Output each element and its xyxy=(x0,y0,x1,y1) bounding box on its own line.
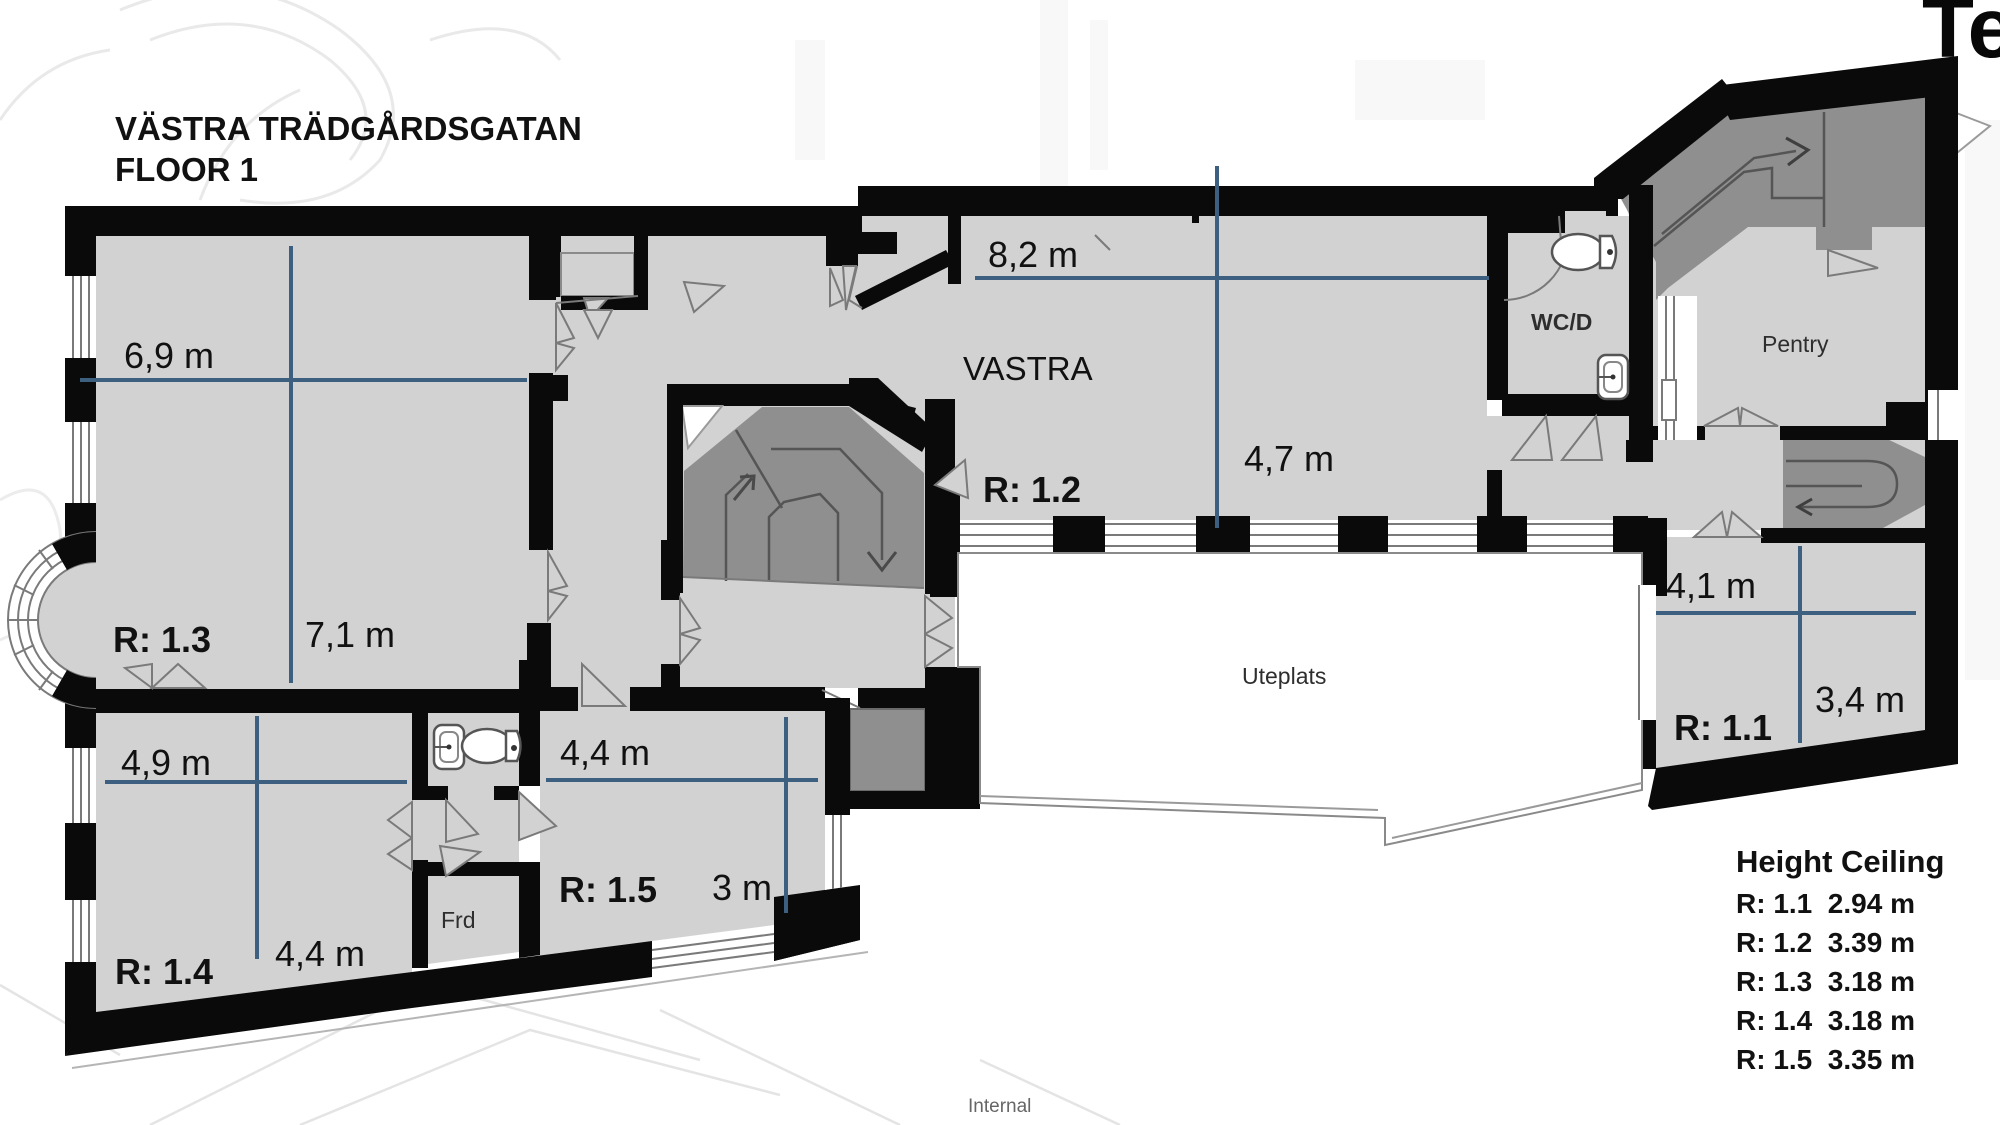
svg-text:Internal: Internal xyxy=(968,1096,1031,1117)
svg-text:R: 1.4 3.18 m: R: 1.4 3.18 m xyxy=(1736,1005,1915,1036)
svg-text:Height Ceiling: Height Ceiling xyxy=(1736,844,1944,879)
svg-text:R: 1.2: R: 1.2 xyxy=(983,469,1081,510)
svg-text:6,9 m: 6,9 m xyxy=(124,335,214,376)
svg-text:R: 1.5 3.35 m: R: 1.5 3.35 m xyxy=(1736,1044,1915,1075)
svg-text:WC/D: WC/D xyxy=(1531,309,1592,335)
svg-text:VÄSTRA TRÄDGÅRDSGATAN: VÄSTRA TRÄDGÅRDSGATAN xyxy=(115,110,582,147)
svg-text:7,1 m: 7,1 m xyxy=(305,614,395,655)
svg-text:R: 1.2 3.39 m: R: 1.2 3.39 m xyxy=(1736,927,1915,958)
svg-text:VASTRA: VASTRA xyxy=(963,350,1093,387)
svg-text:R: 1.5: R: 1.5 xyxy=(559,869,657,910)
svg-text:R: 1.4: R: 1.4 xyxy=(115,951,213,992)
svg-text:4,4 m: 4,4 m xyxy=(560,732,650,773)
svg-text:R: 1.1: R: 1.1 xyxy=(1674,707,1772,748)
svg-text:4,7 m: 4,7 m xyxy=(1244,438,1334,479)
svg-text:R: 1.3: R: 1.3 xyxy=(113,619,211,660)
svg-text:3,4 m: 3,4 m xyxy=(1815,679,1905,720)
svg-text:Pentry: Pentry xyxy=(1762,331,1829,357)
svg-text:8,2 m: 8,2 m xyxy=(988,234,1078,275)
svg-text:3 m: 3 m xyxy=(712,867,772,908)
svg-text:R: 1.3 3.18 m: R: 1.3 3.18 m xyxy=(1736,966,1915,997)
svg-text:Uteplats: Uteplats xyxy=(1242,663,1326,689)
svg-text:4,4 m: 4,4 m xyxy=(275,933,365,974)
svg-text:4,9 m: 4,9 m xyxy=(121,742,211,783)
svg-text:4,1 m: 4,1 m xyxy=(1666,565,1756,606)
svg-text:FLOOR 1: FLOOR 1 xyxy=(115,151,258,188)
svg-text:Frd: Frd xyxy=(441,907,476,933)
svg-text:R: 1.1 2.94 m: R: 1.1 2.94 m xyxy=(1736,888,1915,919)
